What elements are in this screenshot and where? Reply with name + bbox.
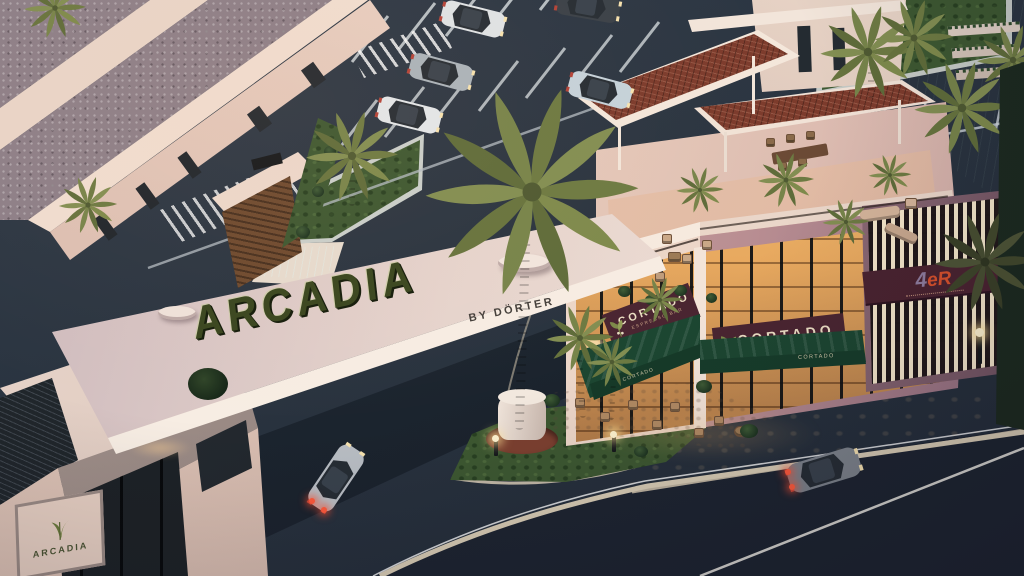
palm-tree xyxy=(25,0,85,38)
terrace-chair xyxy=(702,240,712,250)
palm-tree xyxy=(935,212,1024,312)
palm-tree xyxy=(306,110,398,202)
terrace-chair xyxy=(662,234,672,244)
patio-chair xyxy=(652,420,662,430)
roof-post-1 xyxy=(618,124,621,170)
terrace-planter xyxy=(706,293,717,303)
palm-tree xyxy=(758,152,814,208)
palm-tree xyxy=(676,166,724,214)
garden-bush-1 xyxy=(296,226,310,238)
roof-post-4 xyxy=(898,100,901,144)
roof-post-3 xyxy=(724,132,727,172)
terrace-dining-chair xyxy=(806,131,815,140)
terrace-planter xyxy=(618,286,631,297)
gatehouse-plant xyxy=(188,368,228,400)
gatehouse-sign-text: ARCADIA xyxy=(33,540,89,560)
roof-post-2 xyxy=(752,56,755,114)
bollard-light xyxy=(978,336,982,364)
bollard-light-glow xyxy=(975,328,984,337)
bollard-light xyxy=(494,440,498,456)
palm-tree xyxy=(822,198,870,246)
patio-shrub xyxy=(634,446,648,457)
patio-shrub xyxy=(696,380,712,393)
terrace-chair xyxy=(682,254,692,264)
patio-shrub xyxy=(544,394,560,407)
terrace-lounge-chair xyxy=(905,198,917,209)
patio-chair xyxy=(670,402,680,412)
bollard-light xyxy=(612,436,616,452)
bollard-light-glow xyxy=(492,435,499,442)
tail-light xyxy=(321,507,327,513)
tail-light xyxy=(785,469,791,475)
patio-shrub xyxy=(740,424,758,438)
tail-light xyxy=(309,498,315,504)
northeast-window-1 xyxy=(797,26,812,72)
gatehouse-logo-sign: ARCADIA xyxy=(15,489,106,576)
palm-tree xyxy=(636,276,684,324)
palm-tree xyxy=(476,136,588,248)
palm-tree xyxy=(58,175,118,235)
terrace-dining-chair xyxy=(766,138,775,147)
patio-chair xyxy=(714,416,724,426)
tail-light xyxy=(789,484,795,490)
palm-tree xyxy=(586,336,638,388)
patio-chair xyxy=(694,428,704,438)
terrace-dining-chair xyxy=(786,134,795,143)
patio-chair xyxy=(628,400,638,410)
palm-tree xyxy=(868,153,912,197)
terrace-table xyxy=(668,252,681,262)
bollard-light-glow xyxy=(610,431,617,438)
aerial-render-scene: CORTADO ESPRESSO BAR CORTADO ESPRESSO BA… xyxy=(0,0,1024,576)
palm-leaf-icon xyxy=(46,513,73,543)
